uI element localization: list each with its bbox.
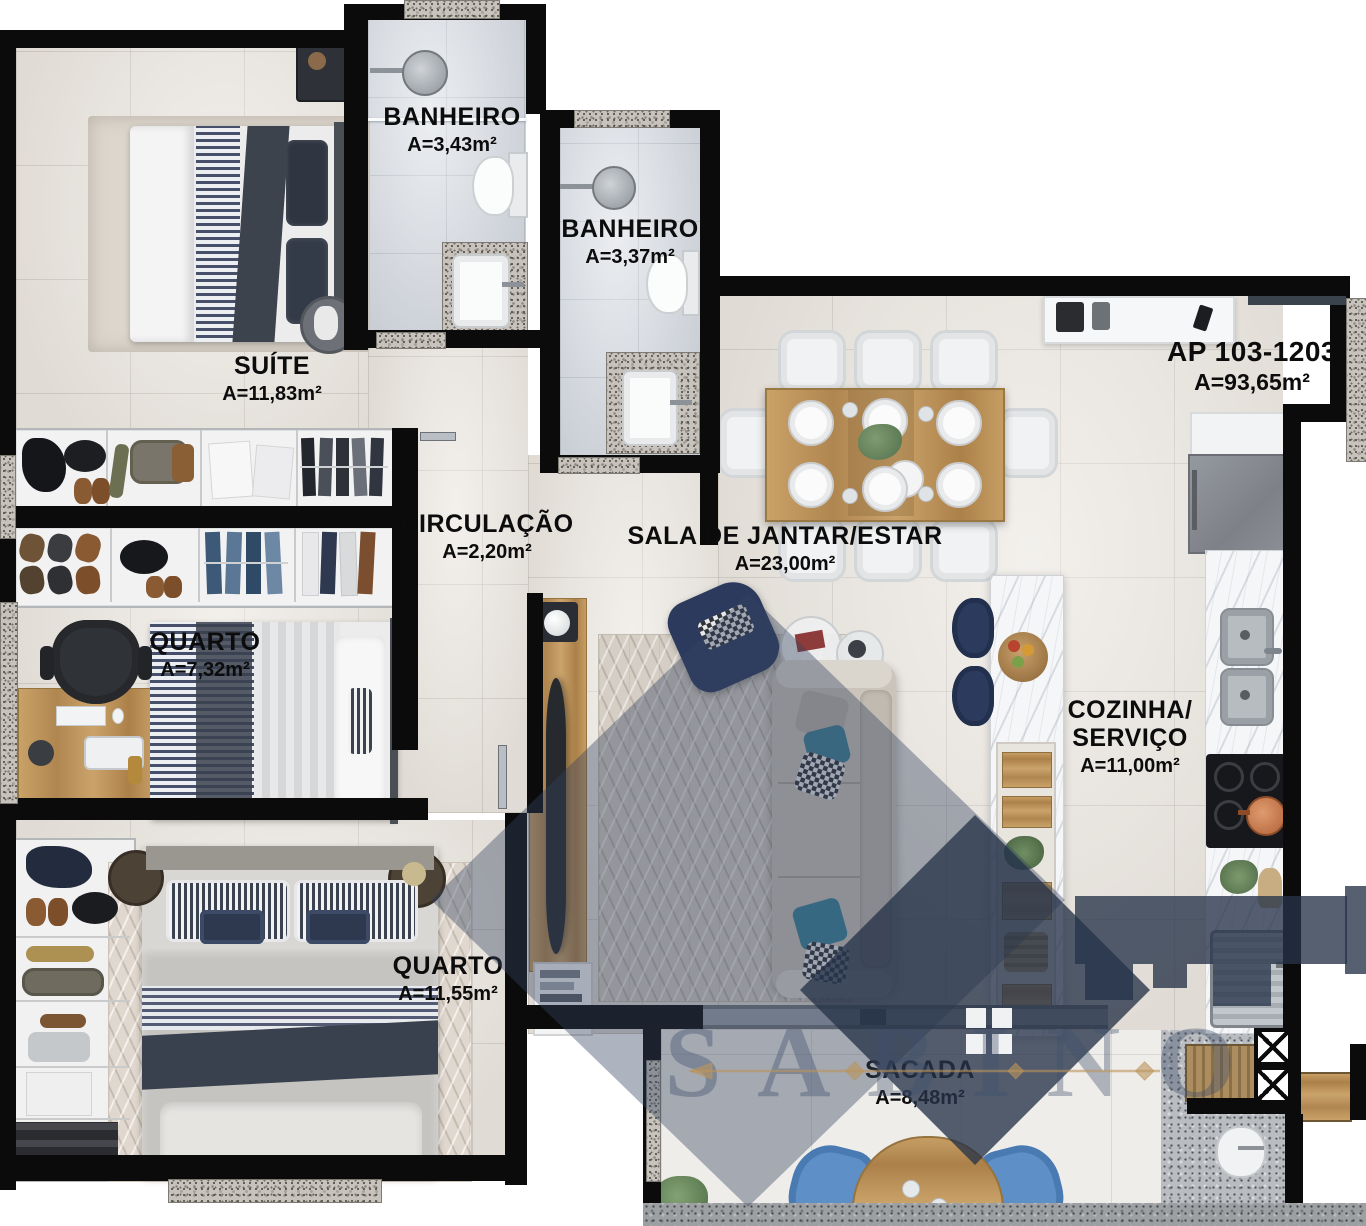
fruit: [1008, 640, 1020, 652]
window-sill: [0, 455, 16, 539]
room-area: A=2,20m²: [377, 541, 597, 563]
closet-rod: [204, 562, 288, 564]
door-leaf: [498, 745, 507, 809]
dining-plate: [936, 462, 982, 508]
keyboard: [56, 706, 106, 726]
dining-chair: [778, 330, 846, 394]
balcony-edge-band: [643, 1203, 1366, 1226]
nightstand-decor: [402, 862, 426, 886]
balcony-wall-sill: [646, 1060, 661, 1182]
wardrobe-linens: [26, 1072, 92, 1116]
room-area: A=23,00m²: [625, 553, 945, 575]
closet-hanging-shirts: [339, 532, 358, 597]
wall: [718, 276, 1350, 296]
desk-chair-arm: [40, 646, 54, 680]
burner: [1214, 800, 1244, 830]
bar-stool: [952, 666, 994, 726]
laundry-tank: [1210, 930, 1292, 1028]
closet-hanging-shirts: [302, 532, 319, 596]
wall: [8, 506, 418, 528]
closet-shoes: [75, 565, 102, 595]
label-banheiro1: BANHEIRO A=3,43m²: [352, 103, 552, 156]
fridge: [1188, 454, 1292, 554]
coffee-grinder: [1092, 302, 1110, 330]
closet-hat: [64, 440, 106, 472]
label-suite: SUÍTE A=11,83m²: [157, 352, 387, 405]
label-sacada: SACADA A=8,48m²: [820, 1056, 1020, 1109]
room-name: SALA DE JANTAR/ESTAR: [625, 522, 945, 550]
decor-bowl: [848, 640, 866, 658]
room-name: SUÍTE: [157, 352, 387, 380]
room-name: QUARTO: [105, 628, 305, 656]
suite-bed-sheet: [130, 126, 194, 342]
room-name: COZINHA/: [1040, 696, 1220, 724]
room-area: A=3,37m²: [545, 246, 715, 268]
toilet-bowl: [472, 156, 514, 216]
wall: [392, 428, 418, 750]
wardrobe-duffel: [22, 968, 104, 996]
closet-sandals: [164, 576, 182, 598]
wall: [1283, 404, 1301, 1034]
room-area: A=11,83m²: [157, 383, 387, 405]
espresso-machine: [1056, 302, 1084, 332]
dining-glass: [918, 486, 934, 502]
wall: [700, 110, 720, 460]
wardrobe-sandals: [26, 898, 46, 926]
service-side-table: [1298, 1072, 1352, 1122]
room-area: A=8,48m²: [820, 1087, 1020, 1109]
window-sill: [404, 0, 500, 19]
wardrobe-shelf-line: [14, 1000, 130, 1002]
label-quarto2: QUARTO A=11,55m²: [348, 952, 548, 1005]
sliding-door-handle: [860, 1009, 886, 1025]
bar-stool: [952, 598, 994, 658]
shaft-x-symbol: [1254, 1028, 1292, 1066]
burner: [1250, 762, 1280, 792]
bedroom2-cushion: [200, 910, 264, 944]
room-name: BANHEIRO: [545, 215, 715, 243]
room-name: QUARTO: [348, 952, 548, 980]
door-leaf: [420, 432, 456, 441]
window-sill: [0, 602, 18, 804]
island-shelf-box: [1002, 882, 1052, 920]
closet-rod: [300, 466, 388, 468]
room-area: A=11,00m²: [1040, 755, 1220, 777]
apartment-code: AP 103-1203: [1132, 336, 1366, 367]
room-area: A=3,43m²: [352, 134, 552, 156]
wall: [526, 4, 546, 114]
mouse: [112, 708, 124, 724]
dining-plate: [862, 466, 908, 512]
label-apartment: AP 103-1203 A=93,65m²: [1132, 336, 1366, 396]
label-banheiro2: BANHEIRO A=3,37m²: [545, 215, 715, 268]
closet-divider: [200, 430, 202, 510]
shower-head: [592, 166, 636, 210]
wall: [1350, 1044, 1366, 1120]
closet-sandals: [92, 478, 110, 504]
bathroom2-sink: [622, 370, 678, 446]
sofa-seat-line: [778, 876, 860, 878]
closet-bag: [172, 444, 194, 482]
suite-pillow-1: [286, 140, 328, 226]
wall: [527, 1005, 703, 1029]
closet-linen: [208, 441, 254, 500]
dining-chair: [930, 330, 998, 394]
service-sink-faucet: [1238, 1146, 1264, 1150]
sink-drain: [1240, 630, 1250, 640]
wardrobe-clutch-gold: [26, 946, 94, 962]
bedroom2-headboard: [146, 846, 434, 870]
wall: [1285, 1114, 1303, 1210]
room-name: BANHEIRO: [352, 103, 552, 131]
room-area: A=11,55m²: [348, 983, 548, 1005]
dining-plate: [788, 462, 834, 508]
copper-pot: [1246, 796, 1286, 836]
closet-divider: [198, 528, 200, 602]
room-name: SERVIÇO: [1040, 724, 1220, 752]
sofa-armrest-top: [776, 660, 892, 688]
floor-lamp-globe: [544, 610, 570, 636]
closet-linen: [252, 444, 294, 499]
sink-drain: [1240, 690, 1250, 700]
wardrobe-sandals: [48, 898, 68, 926]
suite-stool-towel: [314, 306, 338, 340]
fridge-handle: [1192, 470, 1197, 530]
closet-sandals: [146, 576, 164, 598]
sofa-back-cushions: [860, 690, 892, 968]
label-sala: SALA DE JANTAR/ESTAR A=23,00m²: [625, 522, 945, 575]
closet-hat: [120, 540, 168, 574]
closet-hanging-shirts: [320, 532, 337, 594]
closet-sandals: [74, 478, 92, 504]
closet-divider: [294, 528, 296, 602]
fridge-top: [1190, 412, 1290, 460]
room-name: SACADA: [820, 1056, 1020, 1084]
apartment-area: A=93,65m²: [1132, 370, 1366, 396]
wall: [8, 798, 428, 820]
window-rail: [1248, 296, 1346, 305]
bedroom1-cushion: [348, 688, 372, 754]
suite-bed-runner: [196, 126, 240, 342]
dining-plate: [788, 400, 834, 446]
dining-chair: [996, 408, 1058, 478]
wall: [8, 30, 356, 48]
dining-chair: [854, 330, 922, 394]
wardrobe-hat: [72, 892, 118, 924]
fruit: [1022, 644, 1034, 656]
shaft-x-symbol: [1254, 1066, 1292, 1104]
wardrobe-silver-pouch: [28, 1032, 90, 1062]
island-basket: [1004, 932, 1048, 972]
closet-divider: [296, 430, 298, 510]
suite-nightstand-decor: [308, 52, 326, 70]
desk-bottle: [128, 756, 142, 784]
bathroom1-sink: [452, 254, 510, 328]
pot-handle: [1238, 810, 1250, 815]
shower-head: [402, 50, 448, 96]
floor-plan: BANHEIRO A=3,43m² BANHEIRO A=3,37m² SUÍT…: [0, 0, 1366, 1226]
fruit: [1012, 656, 1024, 668]
bathroom2-faucet: [670, 400, 692, 405]
watermark-key-cap: [1345, 886, 1366, 974]
wall: [344, 4, 368, 350]
dining-glass: [918, 406, 934, 422]
wardrobe-roll: [40, 1014, 86, 1028]
wall: [527, 593, 543, 813]
wall: [540, 110, 560, 460]
dining-plate: [936, 400, 982, 446]
room-area: A=7,32m²: [105, 659, 305, 681]
balcony-glass: [902, 1180, 920, 1198]
closet-divider: [110, 528, 112, 602]
window-sill: [168, 1179, 382, 1203]
island-shelf-box: [1002, 796, 1052, 828]
wall: [0, 1155, 515, 1181]
wardrobe-shelf-line: [14, 1118, 130, 1120]
tv: [546, 678, 566, 954]
desk-lamp: [28, 740, 54, 766]
bedroom2-cushion: [306, 910, 370, 944]
wardrobe-shelf-line: [14, 936, 130, 938]
sink-faucet: [1264, 648, 1282, 654]
label-cozinha: COZINHA/ SERVIÇO A=11,00m²: [1040, 696, 1220, 777]
window-sill: [574, 110, 670, 128]
service-sink: [1216, 1126, 1266, 1178]
door-threshold: [376, 332, 446, 349]
label-quarto1: QUARTO A=7,32m²: [105, 628, 305, 681]
counter-jug: [1258, 868, 1282, 908]
wardrobe-shelf-line: [14, 1066, 130, 1068]
bathroom1-faucet: [502, 282, 524, 287]
dining-glass: [842, 488, 858, 504]
label-circulacao: CIRCULAÇÃO A=2,20m²: [377, 510, 597, 563]
wardrobe-navy-cloth: [26, 846, 92, 888]
dining-glass: [842, 402, 858, 418]
sofa-pillow-checker: [801, 940, 851, 985]
door-threshold: [558, 457, 640, 474]
sliding-door-track: [703, 1005, 1108, 1029]
room-name: CIRCULAÇÃO: [377, 510, 597, 538]
fruit-bowl: [998, 632, 1048, 682]
